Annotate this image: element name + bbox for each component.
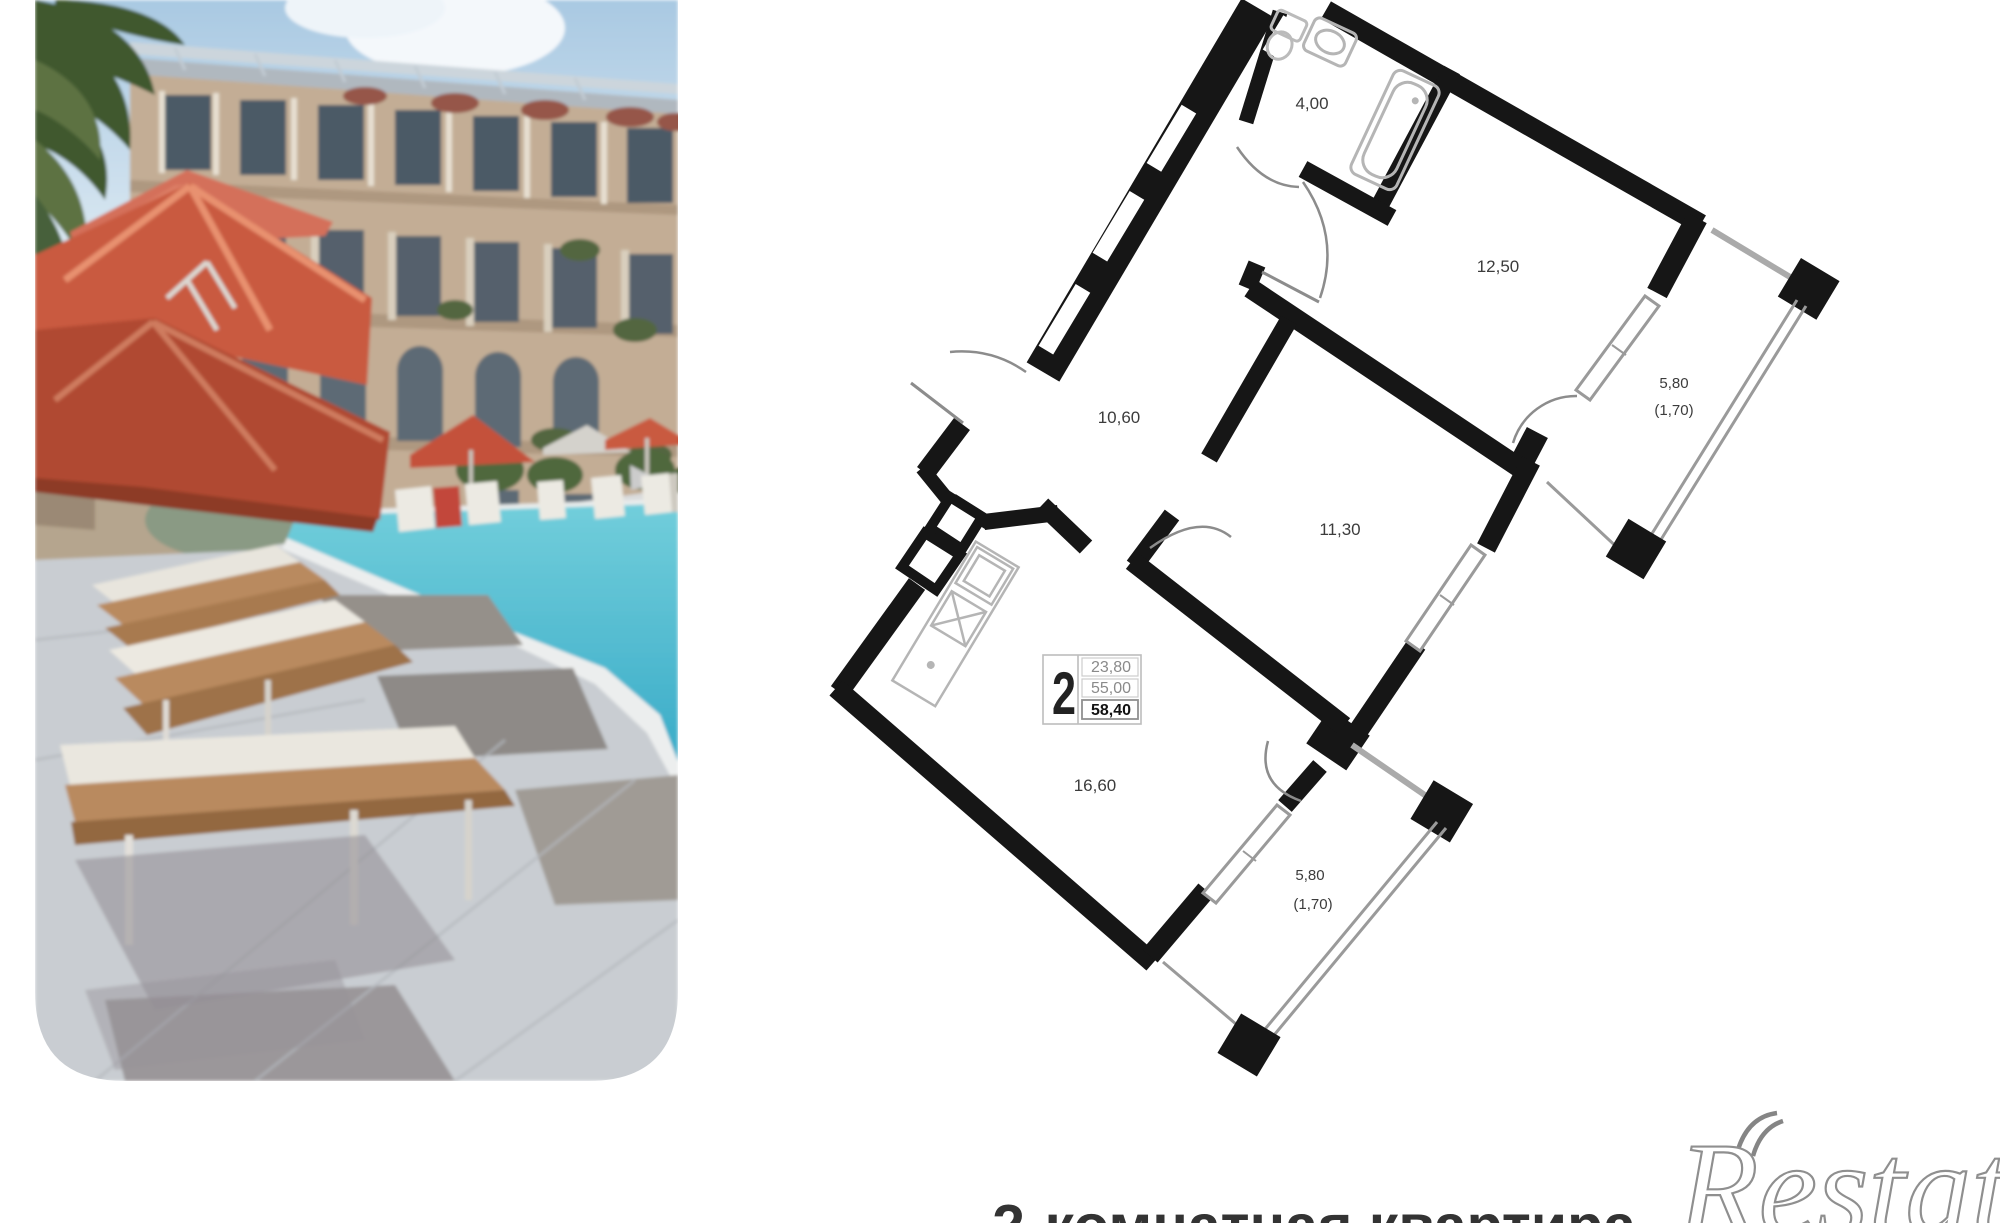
svg-text:2: 2	[1052, 660, 1076, 727]
svg-text:2-комнатная квартира: 2-комнатная квартира	[992, 1193, 1637, 1223]
svg-text:10,60: 10,60	[1098, 408, 1141, 427]
svg-text:16,60: 16,60	[1074, 776, 1117, 795]
svg-text:5,80: 5,80	[1295, 867, 1324, 884]
svg-text:Restate: Restate	[1677, 1115, 2000, 1223]
svg-text:5,80: 5,80	[1659, 375, 1688, 392]
svg-text:58,40: 58,40	[1091, 702, 1131, 719]
svg-text:4,00: 4,00	[1295, 94, 1328, 113]
svg-text:11,30: 11,30	[1319, 520, 1360, 539]
svg-text:(1,70): (1,70)	[1293, 896, 1332, 913]
svg-text:23,80: 23,80	[1091, 659, 1131, 676]
svg-text:12,50: 12,50	[1477, 257, 1520, 276]
svg-text:(1,70): (1,70)	[1654, 402, 1693, 419]
svg-text:55,00: 55,00	[1091, 680, 1131, 697]
